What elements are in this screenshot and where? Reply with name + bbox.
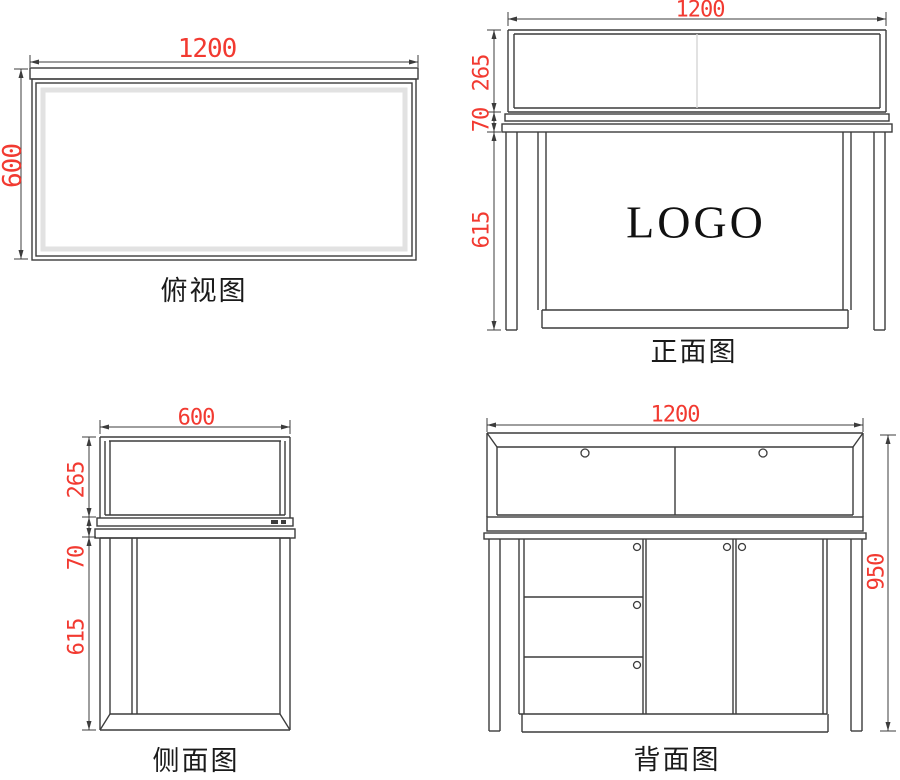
- top-counter-outline: [30, 68, 418, 260]
- back-left-leg: [489, 539, 500, 731]
- view-front: 1200: [470, 0, 893, 367]
- back-door-knob-right: [739, 544, 746, 551]
- front-dim-body-value: 615: [470, 212, 495, 249]
- back-dimension-width: 1200: [487, 403, 863, 433]
- side-lock-hardware: [271, 520, 278, 524]
- back-sliding-door-knob-right: [759, 449, 767, 457]
- top-dimension-depth: 600: [0, 69, 28, 259]
- front-dim-width-value: 1200: [676, 0, 725, 23]
- front-counter-bands: [502, 114, 892, 132]
- front-glass-showcase: [508, 30, 886, 112]
- side-view-label: 侧面图: [153, 746, 240, 776]
- side-counter-bands: [95, 518, 295, 538]
- back-dimension-total-height: 950: [865, 435, 897, 731]
- back-view-label: 背面图: [634, 745, 721, 775]
- back-counter-bands: [484, 517, 866, 539]
- side-dim-width-value: 600: [178, 406, 215, 431]
- view-side: 600: [65, 406, 296, 777]
- back-drawer-knob-1: [634, 544, 641, 551]
- view-top-plan: 1200 600 俯视图: [0, 34, 418, 306]
- front-dim-glass-value: 265: [470, 55, 495, 92]
- side-dimension-width: 600: [100, 406, 290, 435]
- front-dim-counter-value: 70: [470, 108, 495, 133]
- top-dimension-width: 1200: [30, 34, 418, 67]
- technical-drawing: 1200 600 俯视图 1200: [0, 0, 900, 780]
- side-dim-body-value: 615: [65, 619, 90, 656]
- front-right-leg: [874, 132, 885, 330]
- side-lower-body: [100, 538, 290, 730]
- top-glass-inner-edge: [43, 90, 405, 249]
- back-dim-width-value: 1200: [651, 403, 700, 428]
- front-dimension-heights: 265 70 615: [470, 30, 502, 330]
- front-logo-text: LOGO: [626, 197, 766, 248]
- back-drawer-knob-3: [634, 662, 641, 669]
- back-drawer-knob-2: [634, 602, 641, 609]
- back-glass-showcase: [487, 433, 863, 517]
- side-dimension-heights: 265 70 615: [65, 437, 97, 730]
- top-view-label: 俯视图: [161, 276, 248, 306]
- side-glass-showcase: [100, 437, 290, 518]
- top-dim-depth-value: 600: [0, 144, 28, 188]
- front-left-leg: [506, 132, 517, 330]
- side-lock-hardware-2: [281, 520, 286, 524]
- side-dim-counter-value: 70: [65, 546, 90, 571]
- back-dim-height-value: 950: [865, 554, 890, 591]
- front-view-label: 正面图: [651, 337, 738, 367]
- back-door-knob-middle: [724, 544, 731, 551]
- top-dim-width-value: 1200: [178, 34, 237, 64]
- view-back: 1200: [484, 403, 896, 776]
- back-right-leg: [851, 539, 862, 731]
- side-dim-glass-value: 265: [65, 462, 90, 499]
- back-sliding-door-knob-left: [581, 449, 589, 457]
- front-dimension-width: 1200: [508, 0, 886, 26]
- back-cabinet: [519, 539, 828, 732]
